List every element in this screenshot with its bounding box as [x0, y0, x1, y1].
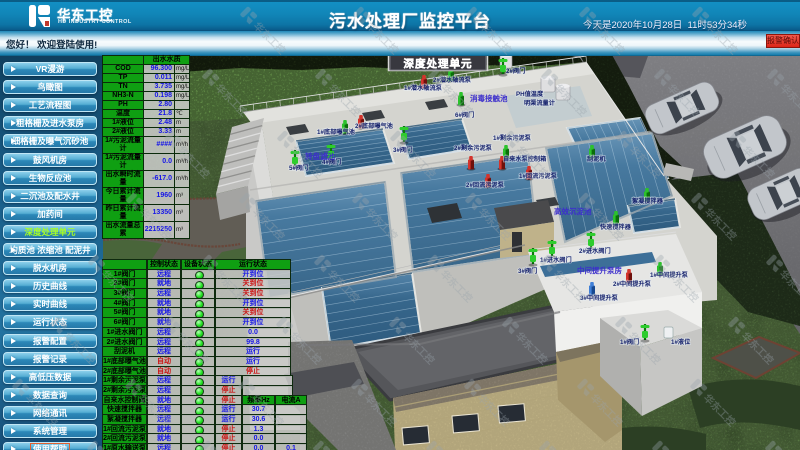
- svg-text:1#剩余污泥泵: 1#剩余污泥泵: [493, 134, 532, 142]
- svg-text:PH值温度: PH值温度: [516, 90, 544, 98]
- svg-text:高效沉淀池: 高效沉淀池: [554, 206, 592, 216]
- svg-text:2#剩余污泥泵: 2#剩余污泥泵: [454, 144, 493, 152]
- svg-text:3#阀门: 3#阀门: [393, 146, 412, 154]
- svg-text:中间提升泵房: 中间提升泵房: [577, 265, 622, 275]
- svg-text:2#阀门: 2#阀门: [506, 67, 525, 75]
- svg-text:絮凝搅拌器: 絮凝搅拌器: [632, 197, 664, 205]
- svg-text:1#中间提升泵: 1#中间提升泵: [650, 271, 689, 279]
- svg-text:2#进水阀门: 2#进水阀门: [579, 247, 611, 255]
- svg-text:1#潜水轴流泵: 1#潜水轴流泵: [404, 84, 443, 92]
- svg-text:快速搅拌器: 快速搅拌器: [600, 223, 632, 231]
- svg-text:6#阀门: 6#阀门: [455, 111, 474, 119]
- svg-text:2#中间提升泵: 2#中间提升泵: [613, 280, 652, 288]
- svg-text:深度处理单元: 深度处理单元: [404, 57, 473, 70]
- svg-text:刮泥机: 刮泥机: [587, 155, 606, 163]
- svg-text:3#阀门: 3#阀门: [518, 267, 537, 275]
- svg-text:1#进水阀门: 1#进水阀门: [540, 256, 572, 264]
- svg-text:2#底部曝气池: 2#底部曝气池: [355, 122, 394, 130]
- svg-text:5#阀门: 5#阀门: [289, 164, 308, 172]
- svg-text:消毒接触池: 消毒接触池: [470, 93, 508, 103]
- svg-text:1#底部曝气池: 1#底部曝气池: [317, 128, 356, 136]
- svg-text:1#回流污泥泵: 1#回流污泥泵: [519, 172, 558, 180]
- svg-text:自来水泵控制箱: 自来水泵控制箱: [503, 155, 546, 163]
- svg-text:3#中间提升泵: 3#中间提升泵: [580, 294, 619, 302]
- svg-text:2#潜水轴流泵: 2#潜水轴流泵: [433, 76, 472, 84]
- svg-text:明渠流量计: 明渠流量计: [524, 99, 556, 107]
- svg-text:1#阀门: 1#阀门: [620, 338, 639, 346]
- svg-text:1#液位: 1#液位: [671, 338, 691, 346]
- svg-text:2#回流污泥泵: 2#回流污泥泵: [466, 181, 505, 189]
- svg-text:转盘滤池: 转盘滤池: [305, 151, 335, 161]
